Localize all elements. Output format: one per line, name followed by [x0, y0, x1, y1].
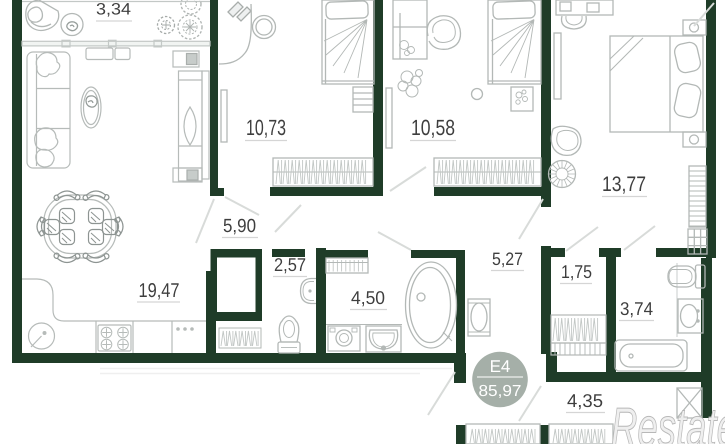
svg-text:13,77: 13,77 [602, 173, 646, 196]
svg-text:Restate: Restate [611, 396, 725, 444]
svg-text:Е4: Е4 [490, 357, 511, 376]
svg-text:3,34: 3,34 [96, 1, 131, 19]
svg-text:1,75: 1,75 [561, 261, 592, 282]
svg-text:3,74: 3,74 [620, 298, 653, 319]
svg-text:85,97: 85,97 [479, 383, 522, 400]
svg-text:10,58: 10,58 [411, 115, 455, 140]
svg-text:10,73: 10,73 [246, 115, 286, 140]
svg-text:19,47: 19,47 [139, 280, 180, 302]
svg-text:5,90: 5,90 [223, 216, 256, 237]
svg-text:4,50: 4,50 [351, 287, 385, 308]
svg-text:5,27: 5,27 [492, 249, 523, 269]
svg-text:2,57: 2,57 [274, 254, 306, 275]
svg-text:4,35: 4,35 [567, 390, 603, 411]
